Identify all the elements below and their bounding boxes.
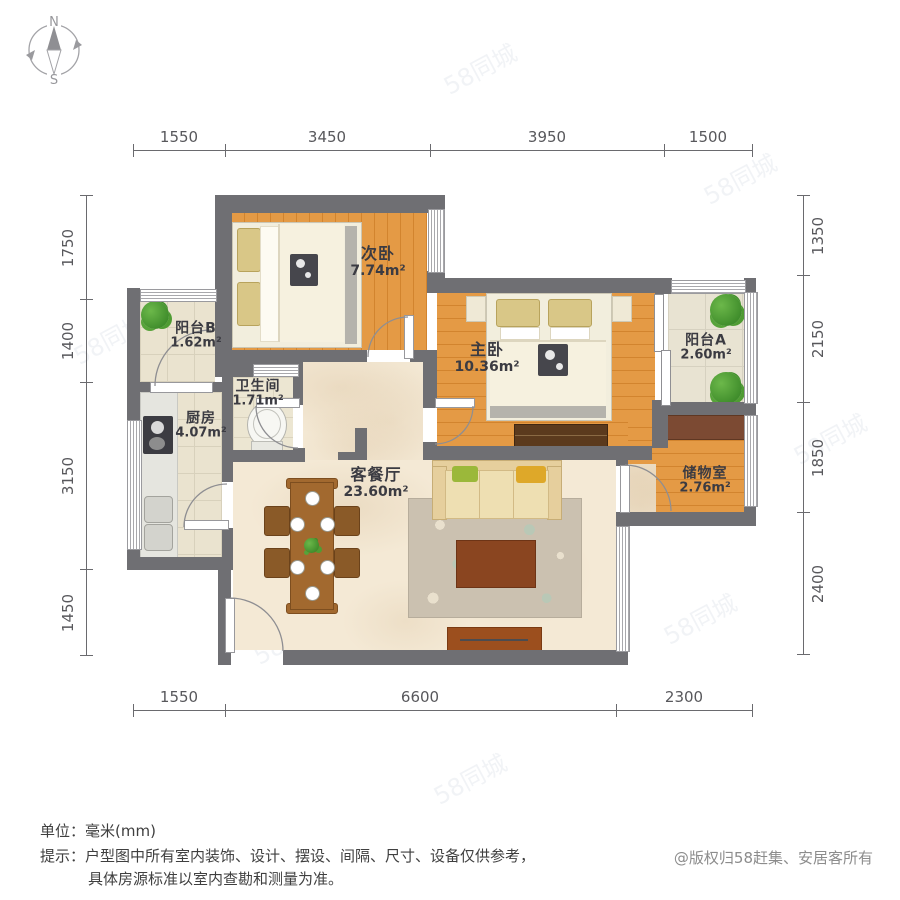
wall bbox=[616, 446, 628, 466]
wall bbox=[140, 382, 150, 392]
svg-text:N: N bbox=[49, 15, 59, 30]
dim-tick bbox=[80, 655, 93, 656]
window bbox=[744, 415, 758, 507]
pillow bbox=[237, 282, 261, 326]
plant bbox=[141, 301, 169, 329]
dim-tick bbox=[133, 704, 134, 717]
room-name: 储物室 bbox=[679, 465, 730, 481]
dim-label: 1550 bbox=[147, 688, 211, 706]
bed-footboard bbox=[345, 226, 357, 344]
plate bbox=[305, 491, 320, 506]
dim-label: 1400 bbox=[59, 309, 77, 373]
wall bbox=[215, 195, 445, 213]
plant bbox=[710, 372, 742, 404]
room-area: 4.07m² bbox=[175, 427, 226, 442]
door-leaf-entry bbox=[225, 598, 235, 653]
window bbox=[428, 209, 445, 273]
sliding-door-panel bbox=[661, 350, 671, 406]
room-name: 卫生间 bbox=[232, 378, 283, 394]
dim-label: 1450 bbox=[59, 581, 77, 645]
window bbox=[744, 292, 758, 404]
dim-tick bbox=[664, 144, 665, 157]
dimension-line-left bbox=[86, 195, 87, 655]
stove bbox=[143, 416, 173, 454]
dining-chair bbox=[334, 548, 360, 578]
dim-label: 2400 bbox=[809, 552, 827, 616]
table-plant bbox=[304, 538, 319, 553]
room-name: 主卧 bbox=[454, 341, 519, 359]
toilet-seat bbox=[253, 409, 281, 439]
plant bbox=[710, 294, 742, 326]
coffee-table bbox=[456, 540, 536, 588]
dim-tick bbox=[133, 144, 134, 157]
dimension-line-right bbox=[803, 195, 804, 654]
dining-chair bbox=[334, 506, 360, 536]
nightstand bbox=[612, 296, 632, 322]
dimension-line-top bbox=[133, 150, 753, 151]
room-area: 23.60m² bbox=[343, 484, 408, 500]
dimension-line-bottom bbox=[133, 710, 753, 711]
window bbox=[127, 420, 142, 550]
bed-tray bbox=[538, 344, 568, 376]
unit-label: 单位： bbox=[40, 822, 85, 840]
room-label-balcony-a: 阳台A 2.60m² bbox=[680, 332, 731, 363]
room-name: 阳台A bbox=[680, 332, 731, 348]
room-label-living-dining: 客餐厅 23.60m² bbox=[343, 466, 408, 500]
tip-note-line1: 提示：户型图中所有室内装饰、设计、摆设、间隔、尺寸、设备仅供参考， bbox=[40, 845, 535, 866]
room-area: 2.60m² bbox=[680, 349, 731, 364]
dim-tick bbox=[797, 654, 810, 655]
dim-label: 1750 bbox=[59, 216, 77, 280]
compass-icon: N S bbox=[18, 10, 90, 90]
pillow bbox=[237, 228, 261, 272]
door-leaf-kitchen bbox=[184, 520, 229, 530]
dim-label: 1350 bbox=[809, 204, 827, 268]
watermark: 58同城 bbox=[786, 404, 872, 472]
dim-tick bbox=[80, 569, 93, 570]
floorplan-canvas: 58同城 58同城 58同城 58同城 58同城 58同城 58同城 58同城 … bbox=[0, 0, 900, 900]
sofa-arm bbox=[547, 466, 562, 520]
wall bbox=[222, 450, 305, 462]
window bbox=[140, 289, 217, 302]
dim-label: 1550 bbox=[147, 128, 211, 146]
tip-text-2: 具体房源标准以室内查勘和测量为准。 bbox=[88, 870, 343, 888]
dim-label: 1500 bbox=[676, 128, 740, 146]
dim-tick bbox=[797, 275, 810, 276]
room-name: 次卧 bbox=[350, 245, 405, 263]
watermark: 58同城 bbox=[426, 744, 512, 812]
dim-label: 1850 bbox=[809, 426, 827, 490]
plate bbox=[305, 586, 320, 601]
pillow bbox=[548, 299, 592, 327]
room-label-secondary-bedroom: 次卧 7.74m² bbox=[350, 245, 405, 279]
watermark: 58同城 bbox=[696, 144, 782, 212]
window bbox=[616, 526, 630, 652]
room-name: 厨房 bbox=[175, 410, 226, 426]
wall bbox=[127, 288, 140, 420]
dining-chair bbox=[264, 506, 290, 536]
dim-tick bbox=[80, 382, 93, 383]
unit-note: 单位：毫米(mm) bbox=[40, 820, 156, 841]
room-label-balcony-b: 阳台B 1.62m² bbox=[170, 320, 221, 351]
nightstand bbox=[466, 296, 486, 322]
room-label-bathroom: 卫生间 1.71m² bbox=[232, 378, 283, 409]
door-leaf-balcony-b bbox=[150, 382, 213, 393]
plate bbox=[290, 517, 305, 532]
room-name: 阳台B bbox=[170, 320, 221, 336]
svg-text:S: S bbox=[50, 73, 58, 88]
door-leaf-master-bedroom bbox=[435, 398, 475, 408]
tip-label: 提示： bbox=[40, 847, 85, 865]
dim-label: 2300 bbox=[652, 688, 716, 706]
tip-text-1: 户型图中所有室内装饰、设计、摆设、间隔、尺寸、设备仅供参考， bbox=[85, 847, 535, 865]
dim-tick bbox=[616, 704, 617, 717]
floor-storage-nook bbox=[628, 464, 656, 512]
plate bbox=[320, 517, 335, 532]
burner bbox=[149, 437, 165, 450]
room-label-storage: 储物室 2.76m² bbox=[679, 465, 730, 496]
burner bbox=[151, 421, 164, 434]
sliding-door-panel bbox=[654, 294, 664, 352]
dining-chair bbox=[264, 548, 290, 578]
storage-cabinet bbox=[664, 415, 746, 440]
cushion-seam bbox=[479, 471, 480, 518]
bed-tray bbox=[290, 254, 318, 286]
dim-tick bbox=[797, 512, 810, 513]
wall bbox=[616, 512, 756, 526]
wall bbox=[127, 548, 140, 570]
dim-label: 3950 bbox=[515, 128, 579, 146]
wall bbox=[283, 650, 628, 665]
pillow-small bbox=[550, 327, 590, 340]
copyright-text: @版权归58赶集、安居客所有 bbox=[674, 849, 873, 867]
wall-column bbox=[338, 452, 367, 460]
room-label-kitchen: 厨房 4.07m² bbox=[175, 410, 226, 441]
wall bbox=[215, 350, 367, 362]
dim-label: 6600 bbox=[388, 688, 452, 706]
plate bbox=[320, 560, 335, 575]
dim-tick bbox=[225, 704, 226, 717]
dim-tick bbox=[225, 144, 226, 157]
wall bbox=[427, 195, 445, 209]
wall bbox=[423, 442, 437, 460]
wardrobe-door-line bbox=[515, 435, 607, 436]
room-label-master-bedroom: 主卧 10.36m² bbox=[454, 341, 519, 375]
door-leaf-secondary-bedroom bbox=[404, 315, 414, 359]
plate bbox=[290, 560, 305, 575]
room-area: 1.71m² bbox=[232, 395, 283, 410]
copyright-note: @版权归58赶集、安居客所有 bbox=[600, 847, 873, 868]
room-area: 1.62m² bbox=[170, 337, 221, 352]
bed-sheet bbox=[260, 226, 280, 342]
dim-label: 3450 bbox=[295, 128, 359, 146]
tip-note-line2: 具体房源标准以室内查勘和测量为准。 bbox=[88, 868, 343, 889]
window bbox=[671, 280, 746, 294]
room-name: 客餐厅 bbox=[343, 466, 408, 484]
sink-basin bbox=[144, 524, 173, 551]
dim-label: 2150 bbox=[809, 307, 827, 371]
dim-tick bbox=[797, 195, 810, 196]
dim-tick bbox=[752, 704, 753, 717]
tv-antenna bbox=[460, 639, 528, 641]
pillow bbox=[496, 299, 540, 327]
dim-tick bbox=[80, 299, 93, 300]
bed-footboard bbox=[490, 406, 606, 418]
sofa-pillow-yellow bbox=[516, 466, 546, 483]
wall bbox=[427, 278, 672, 293]
window bbox=[253, 364, 299, 377]
door-leaf-storage bbox=[620, 465, 630, 513]
watermark: 58同城 bbox=[436, 34, 522, 102]
unit-value: 毫米(mm) bbox=[85, 822, 156, 840]
cushion-seam bbox=[513, 471, 514, 518]
watermark: 58同城 bbox=[656, 584, 742, 652]
wall bbox=[655, 278, 671, 294]
dim-tick bbox=[752, 144, 753, 157]
wall bbox=[127, 557, 233, 570]
dim-tick bbox=[80, 195, 93, 196]
dim-tick bbox=[430, 144, 431, 157]
room-area: 2.76m² bbox=[679, 482, 730, 497]
room-area: 7.74m² bbox=[350, 263, 405, 279]
dim-label: 3150 bbox=[59, 444, 77, 508]
room-area: 10.36m² bbox=[454, 359, 519, 375]
wardrobe bbox=[514, 424, 608, 448]
sink-basin bbox=[144, 496, 173, 523]
wall bbox=[222, 528, 233, 570]
sofa-pillow-green bbox=[452, 466, 478, 482]
pillow-small bbox=[500, 327, 540, 340]
dim-tick bbox=[797, 402, 810, 403]
